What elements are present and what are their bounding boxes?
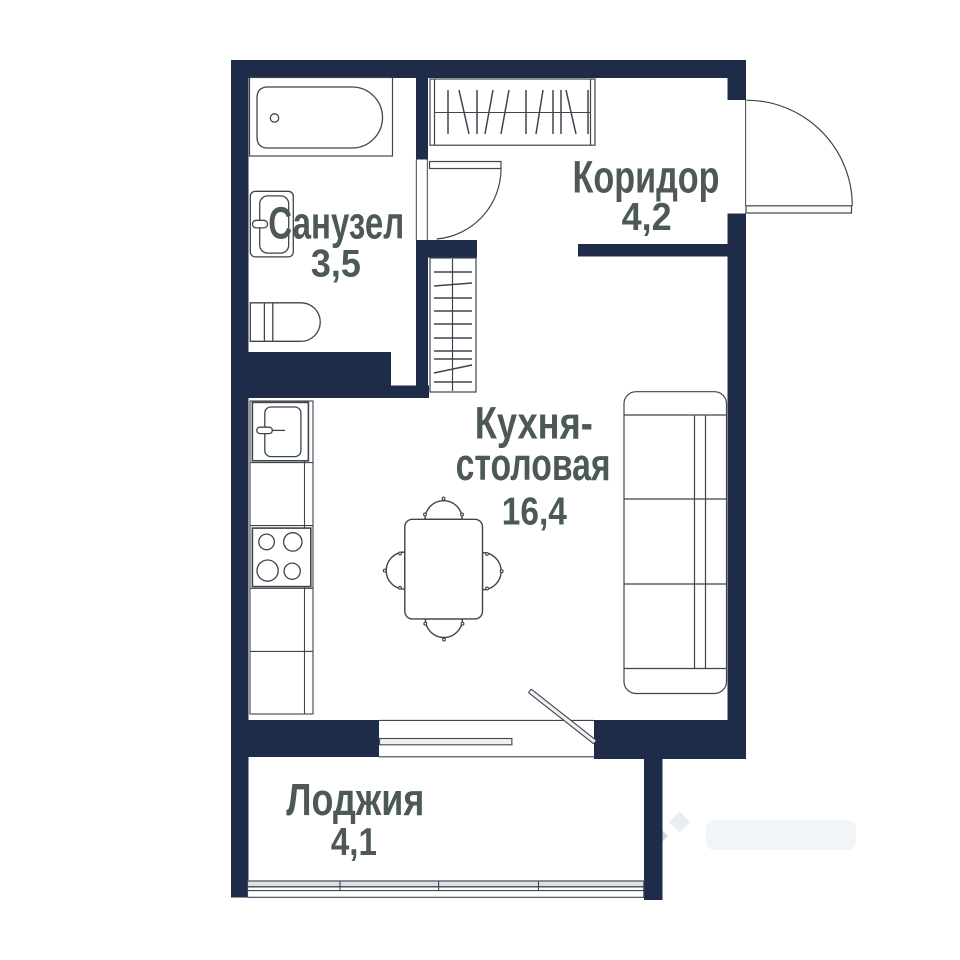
svg-text:3,5: 3,5: [311, 243, 361, 286]
svg-text:4,2: 4,2: [622, 196, 672, 239]
svg-text:Лоджия: Лоджия: [286, 774, 424, 825]
svg-text:16,4: 16,4: [502, 491, 567, 534]
svg-text:4,1: 4,1: [331, 821, 377, 864]
svg-text:Санузел: Санузел: [268, 197, 404, 248]
svg-text:столовая: столовая: [456, 439, 611, 490]
